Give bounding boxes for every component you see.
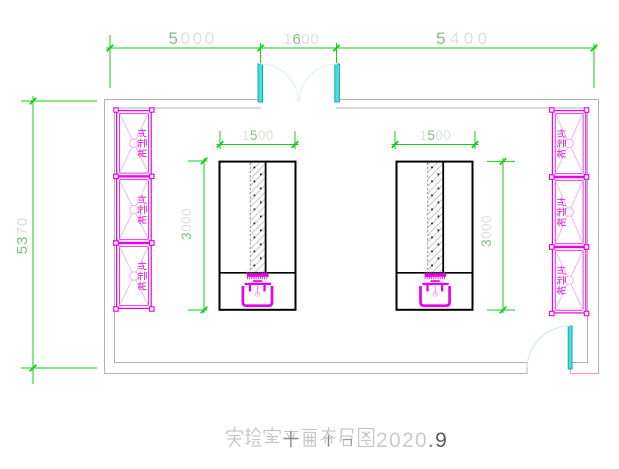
svg-text:5000: 5000	[169, 29, 217, 48]
svg-text:1600: 1600	[284, 31, 320, 48]
svg-text:3000: 3000	[479, 215, 494, 247]
svg-text:5370: 5370	[14, 217, 31, 254]
svg-text:3000: 3000	[179, 208, 194, 240]
svg-text:1500: 1500	[420, 128, 452, 143]
svg-text:1500: 1500	[242, 128, 274, 143]
svg-text:2020.9: 2020.9	[376, 429, 448, 452]
svg-text:5400: 5400	[436, 29, 491, 48]
